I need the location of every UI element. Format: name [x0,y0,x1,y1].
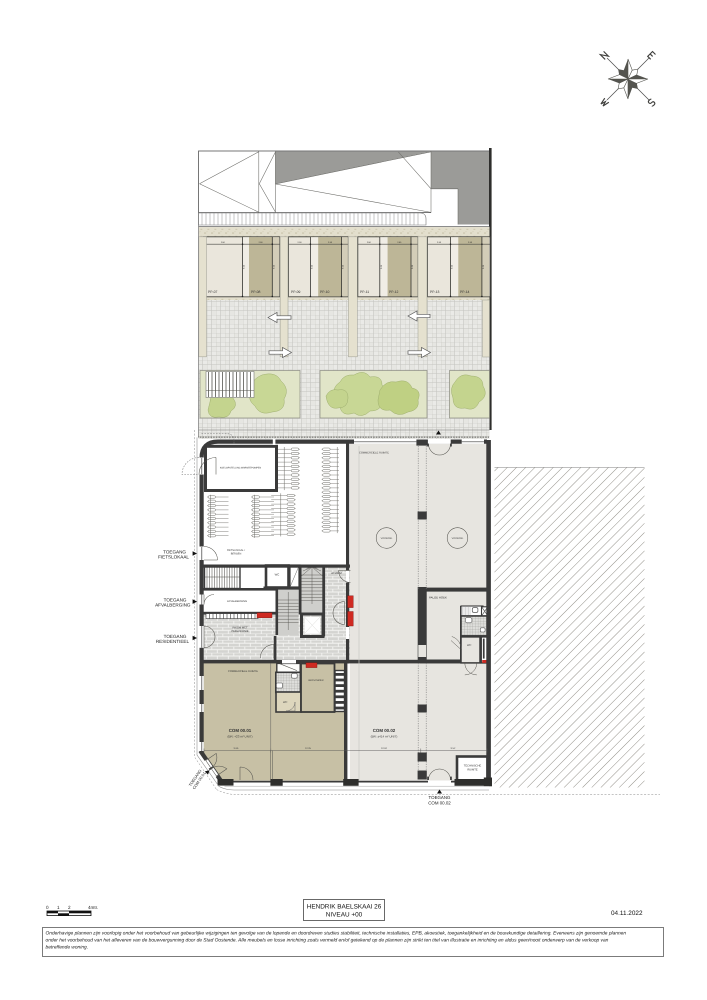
svg-text:2: 2 [68,905,71,910]
svg-text:WC: WC [275,573,280,577]
svg-text:Onderhavige plannen zijn voorl: Onderhavige plannen zijn voorlopig onder… [46,931,627,937]
svg-text:WC: WC [467,644,471,647]
svg-text:VOORZML: VOORZML [381,537,393,540]
svg-text:TOEGANG: TOEGANG [429,795,451,800]
svg-text:PP-10: PP-10 [320,290,330,294]
svg-text:BERGEN: BERGEN [231,553,242,556]
svg-text:1: 1 [57,905,60,910]
svg-text:PP-13: PP-13 [430,290,440,294]
svg-text:COM 00.02: COM 00.02 [428,801,451,806]
svg-text:10.62: 10.62 [381,747,388,750]
svg-text:4mtr.: 4mtr. [88,905,98,910]
svg-text:COMMERCIELE RUIMTE: COMMERCIELE RUIMTE [228,670,258,673]
svg-text:ATRIUM: ATRIUM [331,571,342,575]
svg-text:9.66: 9.66 [234,747,239,750]
svg-text:AFVALBERGING: AFVALBERGING [155,602,191,607]
svg-text:VOORZML: VOORZML [452,537,464,540]
svg-text:0: 0 [46,905,49,910]
svg-text:KOELOPSTELLING WARMTEPOMPEN: KOELOPSTELLING WARMTEPOMPEN [220,466,262,469]
svg-text:TECHNISCHE: TECHNISCHE [464,765,482,768]
svg-text:10.95: 10.95 [305,747,312,750]
svg-text:04.11.2022: 04.11.2022 [611,910,643,917]
svg-text:(BR: +23 m² UNIT): (BR: +23 m² UNIT) [227,735,252,739]
svg-text:FIETSLOKAAL: FIETSLOKAAL [158,554,189,559]
svg-text:PARLOFONIE: PARLOFONIE [231,630,248,633]
svg-text:betreffende woning.: betreffende woning. [46,945,89,951]
svg-text:(BR: ±414 m² UNIT): (BR: ±414 m² UNIT) [371,735,398,739]
svg-text:PP-14: PP-14 [460,290,470,294]
svg-text:PAUZE HOEK: PAUZE HOEK [429,596,447,600]
svg-text:COMMERCIELE RUIMTE: COMMERCIELE RUIMTE [359,452,389,455]
svg-text:PP-12: PP-12 [389,290,399,294]
svg-text:AFVALBERGING: AFVALBERGING [227,600,247,603]
svg-text:RESIDENTIEEL: RESIDENTIEEL [156,639,190,644]
svg-text:PP-09: PP-09 [291,290,301,294]
svg-text:HENDRIK BAELSKAAI 26: HENDRIK BAELSKAAI 26 [307,904,382,911]
svg-text:PP-11: PP-11 [360,290,369,294]
svg-text:PP-08: PP-08 [251,290,261,294]
svg-text:NIVEAU +00: NIVEAU +00 [326,912,363,919]
svg-text:WACHTHOEK: WACHTHOEK [308,679,324,682]
svg-text:WC: WC [283,701,287,704]
svg-text:RUIMTE: RUIMTE [467,769,478,772]
svg-text:9.52: 9.52 [451,747,456,750]
svg-text:PP-07: PP-07 [208,290,218,294]
svg-text:onder het voorbehoud van het a: onder het voorbehoud van het afleveren v… [46,938,609,944]
svg-text:COM 00.01: COM 00.01 [229,728,252,733]
svg-text:COM 00.02: COM 00.02 [373,728,396,733]
